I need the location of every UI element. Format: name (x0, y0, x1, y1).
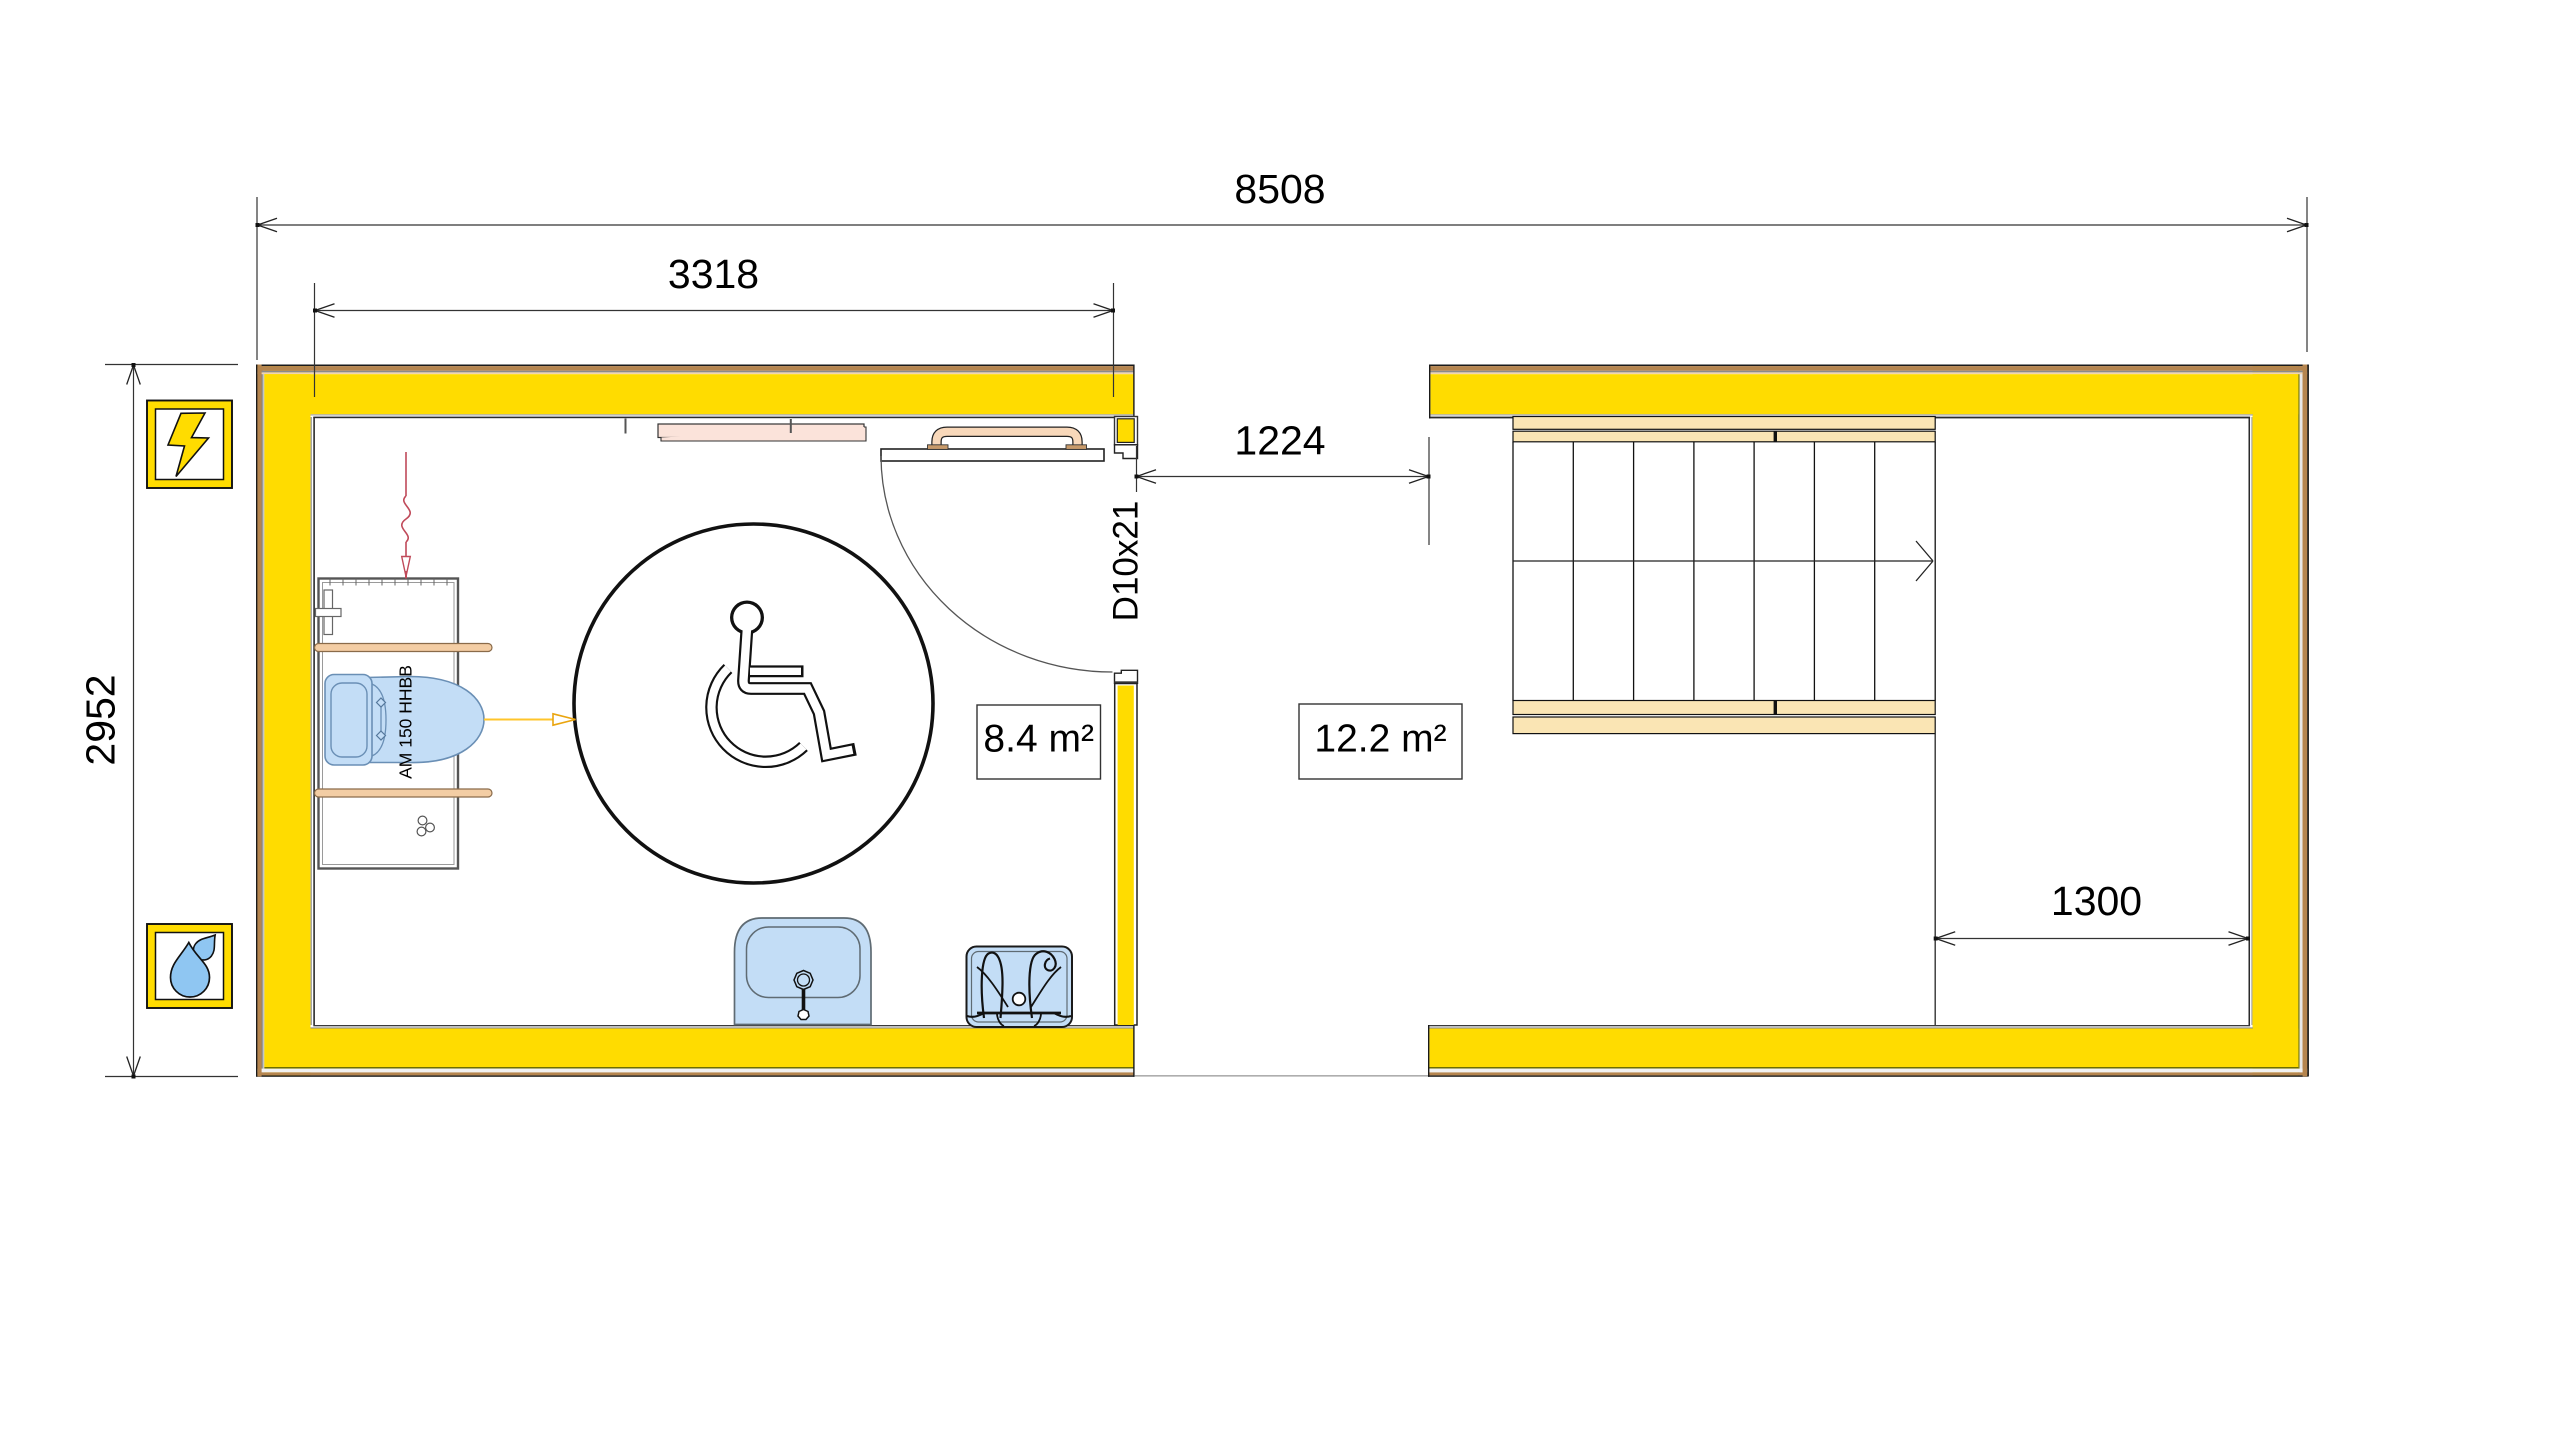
svg-text:2952: 2952 (78, 674, 124, 765)
svg-text:3318: 3318 (668, 251, 759, 297)
svg-text:8.4 m²: 8.4 m² (983, 718, 1094, 761)
svg-text:8508: 8508 (1234, 166, 1325, 212)
svg-text:AM 150 HHBB: AM 150 HHBB (396, 665, 416, 779)
svg-text:12.2 m²: 12.2 m² (1314, 718, 1446, 761)
svg-text:D10x21: D10x21 (1107, 501, 1146, 622)
svg-text:1300: 1300 (2051, 878, 2142, 924)
svg-text:1224: 1224 (1234, 418, 1325, 464)
